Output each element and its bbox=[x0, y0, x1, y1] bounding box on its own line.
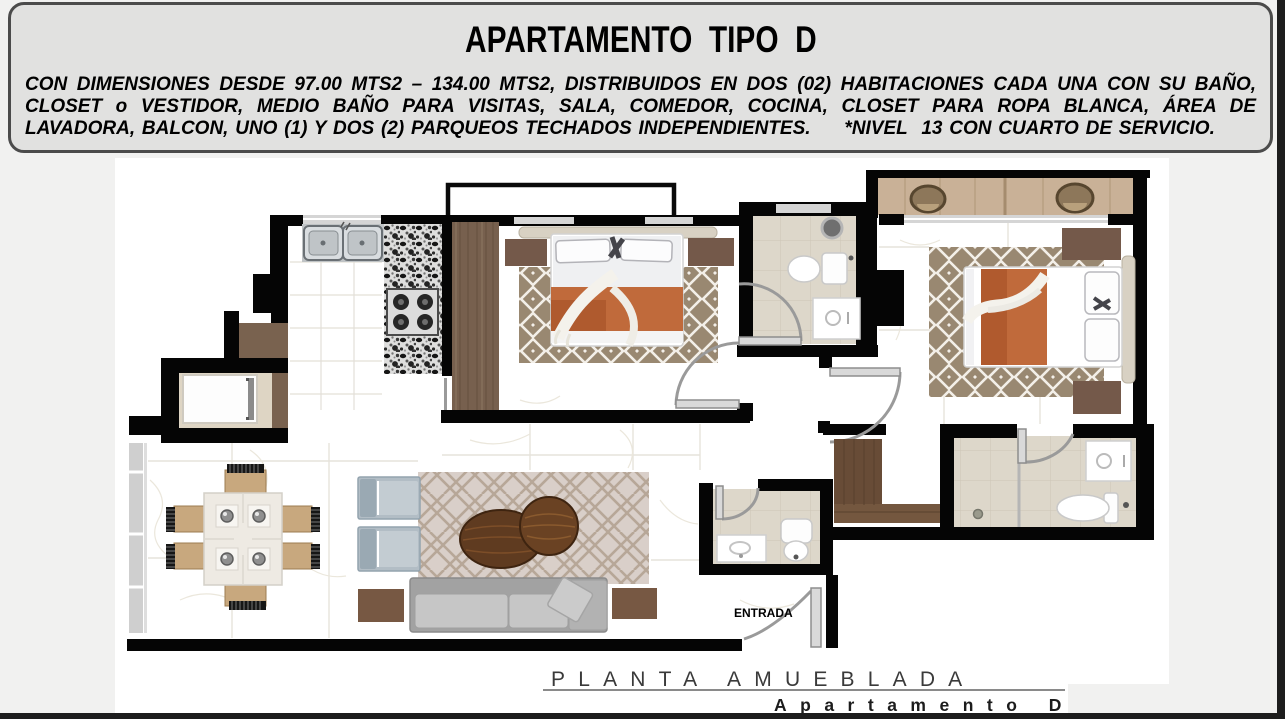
svg-text:PLANTA AMUEBLADA: PLANTA AMUEBLADA bbox=[551, 668, 975, 691]
svg-text:ENTRADA: ENTRADA bbox=[734, 606, 793, 620]
svg-text:Apartamento D: Apartamento D bbox=[774, 695, 1075, 715]
